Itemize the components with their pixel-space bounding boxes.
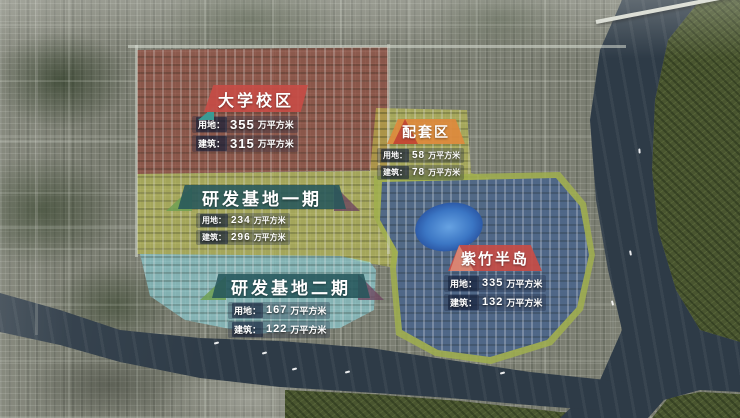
land-label: 用地： — [232, 303, 263, 318]
university-campus-banner: 大学校区 — [204, 85, 308, 112]
land-unit: 万平方米 — [290, 304, 326, 317]
aerial-masterplan-map: 大学校区 用地： 355 万平方米 建筑： 315 万平方米 配套区 用地： 5… — [0, 0, 740, 418]
building-unit: 万平方米 — [258, 137, 294, 150]
atmospheric-haze — [0, 0, 740, 418]
land-label: 用地： — [381, 149, 409, 162]
building-area-stat: 建筑： 122 万平方米 — [228, 321, 330, 338]
zizhu-peninsula-banner: 紫竹半岛 — [448, 245, 542, 271]
land-value: 167 — [266, 305, 287, 316]
rd-base-phase1-stats: 用地： 234 万平方米 建筑： 296 万平方米 — [196, 213, 346, 245]
land-label: 用地： — [448, 276, 479, 291]
building-label: 建筑： — [232, 322, 263, 337]
region-name: 研发基地二期 — [231, 274, 351, 299]
zizhu-peninsula-stats: 用地： 335 万平方米 建筑： 132 万平方米 — [444, 275, 546, 311]
region-name: 大学校区 — [218, 87, 294, 111]
building-area-stat: 建筑： 315 万平方米 — [192, 135, 298, 152]
region-name: 配套区 — [402, 122, 450, 142]
region-label-rd-base-phase1: 研发基地一期 用地： 234 万平方米 建筑： 296 万平方米 — [178, 185, 346, 245]
building-value: 132 — [482, 297, 503, 308]
building-value: 78 — [412, 168, 425, 178]
supporting-area-banner: 配套区 — [387, 119, 465, 144]
region-label-zizhu-peninsula: 紫竹半岛 用地： 335 万平方米 建筑： 132 万平方米 — [444, 245, 546, 311]
building-value: 315 — [230, 137, 255, 150]
region-name: 研发基地一期 — [202, 185, 322, 210]
building-value: 122 — [266, 324, 287, 335]
rd-base-phase2-banner: 研发基地二期 — [212, 274, 370, 298]
land-area-stat: 用地： 234 万平方米 — [196, 213, 290, 228]
land-unit: 万平方米 — [428, 150, 460, 161]
building-value: 296 — [231, 233, 251, 243]
region-label-rd-base-phase2: 研发基地二期 用地： 167 万平方米 建筑： 122 万平方米 — [212, 274, 370, 338]
land-area-stat: 用地： 167 万平方米 — [228, 302, 330, 319]
land-value: 355 — [230, 118, 255, 131]
building-label: 建筑： — [200, 231, 228, 244]
region-label-university-campus: 大学校区 用地： 355 万平方米 建筑： 315 万平方米 — [192, 85, 308, 152]
building-area-stat: 建筑： 296 万平方米 — [196, 230, 290, 245]
land-area-stat: 用地： 335 万平方米 — [444, 275, 546, 292]
land-label: 用地： — [200, 214, 228, 227]
land-unit: 万平方米 — [258, 118, 294, 131]
land-unit: 万平方米 — [254, 215, 286, 226]
building-label: 建筑： — [448, 295, 479, 310]
land-value: 58 — [412, 151, 425, 161]
building-area-stat: 建筑： 78 万平方米 — [377, 165, 464, 180]
building-unit: 万平方米 — [428, 167, 460, 178]
rd-base-phase1-banner: 研发基地一期 — [178, 185, 346, 209]
supporting-area-stats: 用地： 58 万平方米 建筑： 78 万平方米 — [377, 148, 465, 180]
building-label: 建筑： — [196, 136, 227, 151]
region-name: 紫竹半岛 — [461, 248, 529, 269]
rd-base-phase2-stats: 用地： 167 万平方米 建筑： 122 万平方米 — [228, 302, 370, 338]
building-label: 建筑： — [381, 166, 409, 179]
land-value: 234 — [231, 216, 251, 226]
land-value: 335 — [482, 278, 503, 289]
building-unit: 万平方米 — [290, 323, 326, 336]
land-area-stat: 用地： 58 万平方米 — [377, 148, 464, 163]
region-label-supporting-area: 配套区 用地： 58 万平方米 建筑： 78 万平方米 — [377, 119, 465, 180]
university-campus-stats: 用地： 355 万平方米 建筑： 315 万平方米 — [192, 116, 308, 152]
building-unit: 万平方米 — [506, 296, 542, 309]
building-unit: 万平方米 — [254, 232, 286, 243]
land-unit: 万平方米 — [506, 277, 542, 290]
building-area-stat: 建筑： 132 万平方米 — [444, 294, 546, 311]
